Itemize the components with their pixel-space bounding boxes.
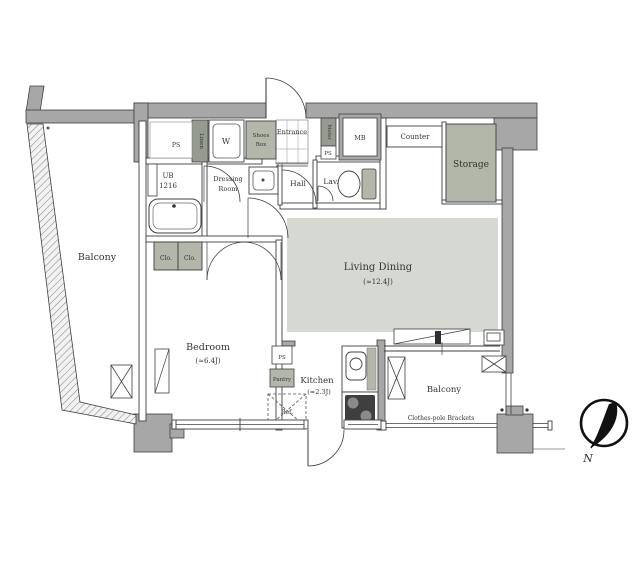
toilet-tank [362,169,376,199]
bathtub-drain [172,204,176,208]
bedroom-size: (≈6.4J) [195,357,221,365]
washing-machine-label: W [222,137,231,146]
wall-ub-dressing [202,160,207,240]
dressing-label2: Room [219,185,238,193]
bedroom-door-arc-right [243,242,281,280]
ps-kitchen-label: PS [278,355,286,361]
mb-label: MB [354,134,366,142]
closet1-label: Clo. [160,255,172,262]
wall-topright-chunk [494,118,537,150]
wall-top-left [134,103,266,118]
hall-label: Hall [290,179,306,188]
bedroom-label: Bedroom [186,342,230,353]
ac-outdoor-right [388,357,405,399]
lav-label: Lav. [323,177,338,186]
wall-hall-lav [313,160,317,208]
floor-plan: Balcony PS Linen W Shoes Box Entrance Me… [0,0,640,569]
wall-dressing-hall [278,160,282,205]
wall-hall-ld [280,203,386,209]
toilet-bowl [338,171,360,197]
storage-label: Storage [453,160,489,170]
refrigerator-label: Ref. [281,409,293,416]
door-stop-flag [435,331,441,344]
shoes-box-label2: Box [256,142,267,148]
ps-top-niche [150,122,192,158]
shoes-box [246,121,276,159]
ub-label1: UB [162,172,173,180]
pillar-bolt-2 [525,408,528,411]
kitchen-size: (≈2.3J) [307,388,331,396]
ac-outdoor-left [111,365,132,398]
evacuation-hatch [482,356,506,372]
dressing-label1: Dressing [213,175,242,183]
clothes-pole-label: Clothes-pole Brackets [408,415,475,422]
washbasin-faucet [262,179,265,182]
ub-label2: 1216 [159,182,177,190]
pantry-label: Pantry [273,377,292,383]
linen-label: Linen [198,133,204,149]
shoes-box-label1: Shoes [253,133,270,139]
ac-indoor-box [484,330,504,345]
bedroom-door-arc-left [207,242,245,280]
lav-door-arc [318,186,333,201]
kitchen-backsplash [367,348,376,390]
kitchen-door-arc [308,430,344,466]
compass-north-label: N [582,452,593,465]
wall-topleft-stub [26,86,44,112]
meter-label: Meter [326,124,332,140]
pillar-bolt-1 [500,408,503,411]
pillar-bottom-right [497,414,533,453]
entrance-label: Entrance [277,128,307,136]
wall-storage-left [442,122,446,204]
wall-balcony-top [26,110,142,123]
kitchen-label: Kitchen [300,376,334,386]
pillar-bottom-right-cap [506,406,523,415]
living-dining-floor [287,218,498,332]
floor-plan-drawing: Balcony PS Linen W Shoes Box Entrance Me… [0,0,640,569]
wall-bath-bottom [146,236,282,242]
stove-burner-1 [348,398,359,409]
counter-label: Counter [401,133,431,141]
ub-door-arc [204,166,240,202]
kitchen-sink [346,352,366,380]
balcony-right-label: Balcony [427,385,461,395]
wall-balcony-interior [139,121,146,421]
north-compass: N [581,400,627,465]
living-dining-label: Living Dining [344,262,413,273]
closet2-label: Clo. [184,255,196,262]
living-dining-size: (≈12.4J) [363,278,393,286]
entrance-tiles [276,120,308,166]
balcony-left-label: Balcony [78,252,117,263]
entrance-door-arc [266,78,306,118]
ps-top-label: PS [172,142,180,149]
railing-dot [47,127,50,130]
bath-counter [148,164,157,196]
ps-entry-label: PS [324,151,332,157]
ld-sliding-door [394,329,470,344]
